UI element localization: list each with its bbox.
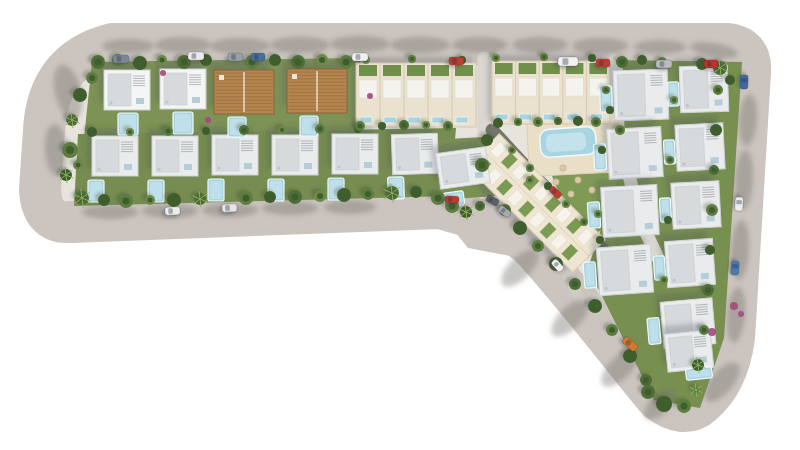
car-windshield: [448, 197, 452, 202]
stair-slats: [640, 198, 652, 199]
chimney: [219, 75, 224, 80]
roof-terrace: [455, 80, 473, 98]
upper-roof-volume: [276, 139, 299, 171]
skylight: [711, 157, 719, 163]
car-windshield: [254, 54, 258, 60]
car-windshield: [660, 61, 665, 67]
canopy-core: [702, 328, 707, 333]
stair-slats: [644, 142, 656, 143]
canopy-core: [435, 195, 442, 202]
canopy-core: [358, 124, 363, 129]
stair-slats: [707, 139, 719, 140]
upper-roof-volume: [605, 190, 635, 233]
skylight: [649, 165, 657, 171]
canopy-core: [89, 75, 95, 81]
pool-shallow: [175, 114, 191, 132]
roof-garden: [383, 65, 401, 76]
upper-roof-volume: [156, 140, 179, 172]
ac-unit: [109, 101, 112, 104]
canopy-core: [590, 56, 594, 60]
brown-roof-villa: [282, 61, 347, 113]
canopy-core: [712, 168, 717, 173]
cast-shadow: [270, 37, 330, 53]
roof-terrace: [383, 80, 401, 98]
site-plan-canvas: [0, 0, 800, 450]
canopy-core: [596, 212, 600, 216]
stair-slats: [640, 196, 652, 197]
skylight: [184, 164, 192, 170]
skylight: [192, 97, 200, 103]
bougainvillea-bush: [367, 93, 373, 99]
canopy-core: [413, 189, 419, 195]
upper-roof-volume: [669, 244, 696, 284]
canopy-core: [598, 238, 602, 242]
cast-shadow: [210, 38, 270, 54]
chimney: [292, 74, 297, 79]
aerial-site-render: [0, 0, 800, 450]
parasol: [575, 177, 581, 183]
canopy-core: [576, 119, 581, 124]
white-villa: [591, 236, 654, 296]
upper-roof-volume: [336, 138, 359, 170]
skylight: [645, 223, 653, 229]
skylight: [124, 164, 132, 170]
upper-roof-volume: [395, 138, 419, 171]
canopy-core: [402, 123, 407, 128]
white-villa: [155, 61, 206, 109]
car-windshield: [741, 78, 747, 82]
canopy-core: [123, 198, 130, 205]
skylight: [136, 98, 144, 104]
skylight: [701, 273, 709, 280]
cast-shadow: [82, 205, 138, 219]
stair-slats: [640, 193, 652, 194]
stair-slats: [702, 194, 714, 195]
canopy-core: [716, 88, 721, 93]
canopy-core: [272, 57, 278, 63]
car-windshield: [452, 58, 457, 64]
canopy-core: [128, 130, 132, 134]
car-windshield: [562, 58, 568, 65]
cast-shadow: [102, 39, 154, 53]
canopy-core: [242, 128, 247, 133]
stair-slats: [644, 138, 656, 139]
canopy-core: [645, 389, 652, 396]
ac-unit: [277, 166, 280, 169]
roof-terrace: [566, 78, 584, 96]
white-villa: [327, 126, 378, 174]
roof-garden: [407, 65, 425, 76]
car-windshield: [732, 264, 738, 269]
cast-shadow: [452, 37, 508, 53]
canopy-core: [267, 194, 273, 200]
private-pool: [583, 262, 597, 289]
canopy-core: [709, 207, 715, 213]
roof-terrace: [542, 78, 560, 96]
stair-slats: [702, 187, 714, 188]
car-windshield: [707, 61, 711, 67]
skylight: [364, 162, 372, 168]
canopy-core: [365, 191, 371, 197]
stair-slats: [644, 133, 656, 134]
upper-roof-volume: [675, 186, 701, 225]
bougainvillea-bush: [738, 311, 744, 317]
canopy-core: [627, 353, 634, 360]
roof-terrace: [519, 78, 537, 96]
communal-pool: [539, 126, 597, 158]
canopy-core: [292, 194, 299, 201]
canopy-core: [592, 303, 599, 310]
skylight: [304, 163, 312, 169]
brown-roof-villa: [209, 62, 274, 114]
canopy-core: [516, 120, 520, 124]
canopy-core: [160, 58, 165, 63]
upper-roof-volume: [108, 74, 131, 106]
canopy-core: [76, 163, 81, 168]
upper-roof-volume: [440, 154, 469, 185]
car-windshield: [356, 54, 361, 60]
ac-unit: [337, 165, 340, 168]
canopy-core: [666, 218, 670, 222]
canopy-core: [668, 158, 672, 162]
canopy-core: [494, 56, 498, 60]
stair-slats: [644, 140, 656, 141]
roof-terrace: [431, 80, 449, 98]
canopy-core: [137, 60, 144, 67]
roof-garden: [431, 65, 449, 76]
canopy-core: [640, 58, 645, 63]
canopy-core: [728, 78, 733, 83]
stair-slats: [702, 192, 714, 193]
canopy-core: [95, 59, 102, 66]
ac-unit: [217, 166, 220, 169]
canopy-core: [556, 119, 560, 123]
car-windshield: [231, 54, 236, 60]
cast-shadow: [324, 200, 376, 214]
roof-garden: [519, 63, 537, 74]
private-pool: [208, 179, 224, 201]
canopy-core: [479, 162, 486, 169]
canopy-core: [582, 220, 586, 224]
canopy-core: [243, 195, 250, 202]
skylight: [424, 161, 432, 167]
stair-slats: [706, 136, 718, 137]
cast-shadow: [390, 37, 450, 53]
canopy-core: [148, 198, 153, 203]
skylight: [714, 99, 722, 105]
canopy-core: [317, 193, 323, 199]
plunge-pool: [384, 117, 396, 123]
roof-terrace: [495, 78, 513, 96]
ac-unit: [165, 100, 168, 103]
white-villa: [147, 128, 198, 176]
canopy-core: [564, 202, 568, 206]
car-windshield: [168, 208, 173, 214]
skylight: [654, 107, 662, 113]
upper-roof-volume: [216, 139, 239, 171]
canopy-core: [672, 98, 676, 102]
canopy-core: [295, 59, 302, 66]
canopy-core: [713, 127, 719, 133]
pool-shallow: [585, 264, 595, 287]
pool-shallow: [210, 181, 222, 199]
canopy-core: [341, 192, 348, 199]
canopy-core: [708, 248, 713, 253]
bougainvillea-bush: [160, 70, 166, 76]
bougainvillea-bush: [708, 328, 716, 336]
canopy-core: [608, 108, 612, 112]
upper-roof-volume: [601, 250, 631, 292]
canopy-core: [600, 148, 604, 152]
canopy-core: [510, 148, 514, 152]
canopy-core: [171, 197, 178, 204]
stair-slats: [703, 197, 715, 198]
canopy-core: [619, 59, 625, 65]
canopy-core: [542, 55, 546, 59]
cast-shadow: [512, 37, 568, 53]
canopy-core: [517, 225, 524, 232]
upper-roof-volume: [679, 128, 705, 167]
skylight: [244, 163, 252, 169]
cast-shadow: [634, 40, 686, 54]
canopy-core: [319, 57, 325, 63]
roof-garden: [359, 65, 377, 76]
white-villa: [601, 119, 663, 180]
upper-roof-volume: [96, 140, 119, 172]
parasol: [553, 179, 559, 185]
canopy-core: [535, 243, 541, 249]
cast-shadow: [330, 36, 390, 52]
canopy-core: [572, 281, 578, 287]
plunge-pool: [408, 117, 420, 123]
car-windshield: [599, 60, 603, 66]
upper-roof-volume: [617, 74, 645, 117]
canopy-core: [410, 57, 414, 61]
plunge-pool: [456, 117, 468, 123]
canopy-core: [604, 88, 608, 92]
ac-unit: [97, 167, 100, 170]
upper-roof-volume: [611, 132, 640, 175]
car-windshield: [225, 205, 230, 211]
roof-terrace: [407, 80, 425, 98]
upper-roof-volume: [683, 70, 708, 109]
canopy-core: [594, 120, 599, 125]
canopy-core: [380, 124, 384, 128]
car-windshield: [736, 200, 742, 204]
canopy-core: [446, 124, 451, 129]
roof-garden: [495, 63, 513, 74]
upper-roof-volume: [164, 73, 187, 105]
cast-shadow: [572, 38, 628, 54]
stair-slats: [644, 135, 656, 136]
private-pool: [647, 318, 661, 345]
stair-slats: [640, 200, 652, 201]
canopy-core: [528, 166, 532, 170]
canopy-core: [660, 400, 668, 408]
canopy-core: [101, 197, 107, 203]
car-windshield: [192, 53, 197, 59]
bougainvillea-bush: [205, 117, 211, 123]
skylight: [639, 281, 647, 288]
pool-shallow: [545, 132, 586, 153]
skylight: [475, 171, 484, 178]
canopy-core: [280, 128, 284, 132]
canopy-core: [681, 403, 688, 410]
cast-shadow: [262, 201, 318, 215]
parasol: [589, 187, 595, 193]
ac-unit: [157, 167, 160, 170]
canopy-core: [478, 204, 483, 209]
canopy-core: [618, 128, 623, 133]
canopy-core: [705, 287, 711, 293]
canopy-core: [204, 129, 208, 133]
canopy-core: [528, 178, 532, 182]
stair-slats: [640, 191, 652, 192]
canopy-core: [536, 120, 541, 125]
parasol: [568, 191, 574, 197]
cast-shadow: [155, 37, 211, 53]
canopy-core: [318, 127, 323, 132]
canopy-core: [90, 130, 95, 135]
bougainvillea-bush: [730, 302, 738, 310]
white-villa: [665, 173, 721, 230]
canopy-core: [609, 327, 615, 333]
canopy-core: [496, 121, 501, 126]
parasol: [560, 165, 566, 171]
townhouse-row: [488, 55, 610, 124]
white-villa: [595, 177, 659, 238]
canopy-core: [643, 377, 649, 383]
canopy-core: [77, 92, 84, 99]
car-windshield: [117, 56, 122, 62]
canopy-core: [662, 278, 666, 282]
canopy-core: [66, 146, 74, 154]
stair-slats: [702, 189, 714, 190]
canopy-core: [424, 123, 428, 127]
canopy-core: [166, 129, 171, 134]
skylight: [707, 215, 715, 221]
canopy-core: [484, 137, 490, 143]
private-pool: [173, 112, 193, 134]
